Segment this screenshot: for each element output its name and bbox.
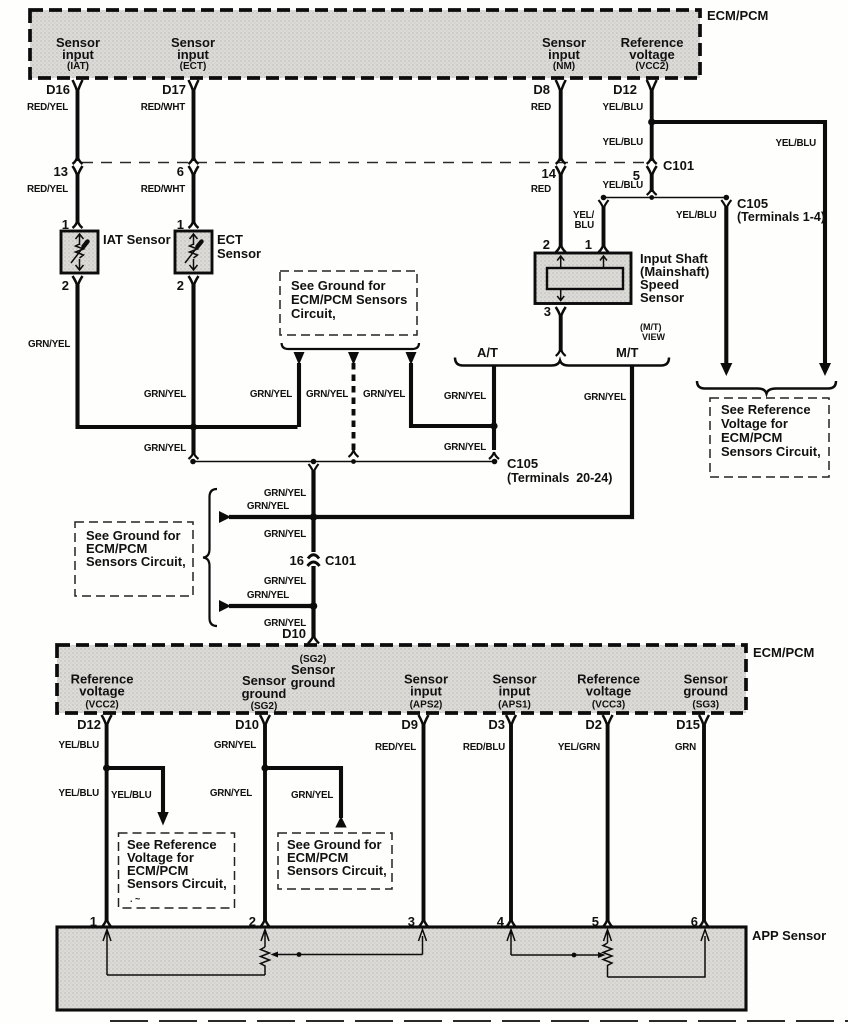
svg-text:2: 2 xyxy=(62,278,69,293)
svg-text:BLU: BLU xyxy=(574,220,594,231)
svg-text:input: input xyxy=(177,47,209,62)
svg-text:RED/WHT: RED/WHT xyxy=(141,102,186,113)
svg-text:GRN/YEL: GRN/YEL xyxy=(444,391,486,402)
svg-text:input: input xyxy=(410,684,442,699)
svg-text:(Terminals 1-4): (Terminals 1-4) xyxy=(737,210,825,224)
svg-text:RED/YEL: RED/YEL xyxy=(27,102,68,113)
svg-text:M/T: M/T xyxy=(616,345,638,360)
svg-text:YEL/BLU: YEL/BLU xyxy=(58,788,99,799)
svg-text:D8: D8 xyxy=(533,82,550,97)
svg-text:C105: C105 xyxy=(737,196,768,211)
svg-text:GRN/YEL: GRN/YEL xyxy=(247,501,289,512)
svg-text:1: 1 xyxy=(585,237,592,252)
svg-text:C105: C105 xyxy=(507,456,538,471)
svg-text:RED/WHT: RED/WHT xyxy=(141,184,186,195)
svg-text:13: 13 xyxy=(54,164,68,179)
svg-text:14: 14 xyxy=(542,166,557,181)
svg-text:ECM/PCM: ECM/PCM xyxy=(721,430,782,445)
svg-text:ECM/PCM: ECM/PCM xyxy=(707,8,768,23)
svg-text:A/T: A/T xyxy=(477,345,498,360)
svg-text:Circuit,: Circuit, xyxy=(291,306,336,321)
svg-text:GRN/YEL: GRN/YEL xyxy=(144,443,186,454)
svg-text:(M/T): (M/T) xyxy=(640,322,662,332)
svg-text:(SG2): (SG2) xyxy=(251,701,278,712)
svg-text:input: input xyxy=(499,684,531,699)
svg-text:6: 6 xyxy=(177,164,184,179)
svg-text:YEL/BLU: YEL/BLU xyxy=(602,137,643,148)
svg-text:input: input xyxy=(62,47,94,62)
svg-text:GRN/YEL: GRN/YEL xyxy=(264,529,306,540)
svg-text:D10: D10 xyxy=(235,717,259,732)
svg-text:D3: D3 xyxy=(488,717,505,732)
svg-text:D12: D12 xyxy=(613,82,637,97)
svg-text:Sensors Circuit,: Sensors Circuit, xyxy=(127,876,227,891)
svg-text:(NM): (NM) xyxy=(553,61,575,72)
svg-text:Sensors Circuit,: Sensors Circuit, xyxy=(287,863,387,878)
svg-text:GRN/YEL: GRN/YEL xyxy=(210,788,252,799)
svg-text:(APS2): (APS2) xyxy=(410,700,443,711)
svg-text:16: 16 xyxy=(290,553,304,568)
svg-text:See Reference: See Reference xyxy=(721,402,811,417)
svg-text:Sensors Circuit,: Sensors Circuit, xyxy=(721,444,821,459)
svg-text:YEL/BLU: YEL/BLU xyxy=(775,138,816,149)
svg-text:ECM/PCM Sensors: ECM/PCM Sensors xyxy=(291,292,407,307)
svg-text:VIEW: VIEW xyxy=(642,332,666,342)
svg-text:C101: C101 xyxy=(663,158,694,173)
svg-text:APP Sensor: APP Sensor xyxy=(752,928,826,943)
svg-text:(IAT): (IAT) xyxy=(67,61,89,72)
svg-text:RED: RED xyxy=(531,184,551,195)
svg-text:2: 2 xyxy=(543,237,550,252)
svg-text:C101: C101 xyxy=(325,553,356,568)
svg-text:3: 3 xyxy=(544,304,551,319)
svg-text:Voltage for: Voltage for xyxy=(721,416,788,431)
svg-text:YEL/BLU: YEL/BLU xyxy=(58,740,99,751)
svg-text:D12: D12 xyxy=(77,717,101,732)
svg-text:D16: D16 xyxy=(46,82,70,97)
svg-text:GRN/YEL: GRN/YEL xyxy=(247,590,289,601)
svg-text:D10: D10 xyxy=(282,626,306,641)
svg-text:GRN/YEL: GRN/YEL xyxy=(291,790,333,801)
svg-text:voltage: voltage xyxy=(586,684,632,699)
svg-text:GRN/YEL: GRN/YEL xyxy=(264,576,306,587)
svg-text:RED: RED xyxy=(531,102,551,113)
svg-text:Sensor: Sensor xyxy=(640,290,684,305)
svg-text:GRN/YEL: GRN/YEL xyxy=(306,389,348,400)
svg-text:ECM/PCM: ECM/PCM xyxy=(753,645,814,660)
svg-text:GRN/YEL: GRN/YEL xyxy=(250,389,292,400)
svg-text:Sensor: Sensor xyxy=(217,246,261,261)
svg-text:input: input xyxy=(548,47,580,62)
svg-text:GRN/YEL: GRN/YEL xyxy=(28,339,70,350)
svg-text:YEL/BLU: YEL/BLU xyxy=(676,210,717,221)
svg-text:YEL/BLU: YEL/BLU xyxy=(602,102,643,113)
svg-text:D2: D2 xyxy=(585,717,602,732)
svg-text:(VCC2): (VCC2) xyxy=(85,700,118,711)
svg-text:2: 2 xyxy=(177,278,184,293)
svg-text:GRN/YEL: GRN/YEL xyxy=(444,442,486,453)
svg-text:ground: ground xyxy=(683,684,728,699)
svg-text:YEL/BLU: YEL/BLU xyxy=(111,790,152,801)
svg-text:YEL/BLU: YEL/BLU xyxy=(602,180,643,191)
svg-text:voltage: voltage xyxy=(629,47,675,62)
svg-text:RED/YEL: RED/YEL xyxy=(375,742,416,753)
svg-text:RED/BLU: RED/BLU xyxy=(463,742,505,753)
svg-text:(SG3): (SG3) xyxy=(692,700,719,711)
svg-text:(Terminals 20-24): (Terminals 20-24) xyxy=(507,471,612,485)
svg-text:ECT: ECT xyxy=(217,232,243,247)
svg-text:GRN/YEL: GRN/YEL xyxy=(264,488,306,499)
svg-text:(VCC2): (VCC2) xyxy=(635,61,668,72)
svg-text:YEL/GRN: YEL/GRN xyxy=(558,742,600,753)
svg-text:(ECT): (ECT) xyxy=(180,61,207,72)
svg-text:D17: D17 xyxy=(162,82,186,97)
svg-text:GRN/YEL: GRN/YEL xyxy=(363,389,405,400)
svg-text:GRN/YEL: GRN/YEL xyxy=(214,740,256,751)
svg-text:. ~: . ~ xyxy=(130,894,140,904)
svg-text:Sensors Circuit,: Sensors Circuit, xyxy=(86,554,186,569)
svg-text:GRN: GRN xyxy=(675,742,696,753)
svg-text:ground: ground xyxy=(242,686,287,701)
svg-text:IAT Sensor: IAT Sensor xyxy=(103,232,171,247)
svg-text:GRN/YEL: GRN/YEL xyxy=(584,392,626,403)
svg-text:(APS1): (APS1) xyxy=(498,700,531,711)
svg-text:See Ground for: See Ground for xyxy=(291,278,386,293)
svg-text:RED/YEL: RED/YEL xyxy=(27,184,68,195)
svg-text:D9: D9 xyxy=(401,717,418,732)
svg-text:voltage: voltage xyxy=(79,684,125,699)
svg-text:ground: ground xyxy=(291,675,336,690)
svg-text:D15: D15 xyxy=(676,717,700,732)
svg-text:GRN/YEL: GRN/YEL xyxy=(144,389,186,400)
svg-text:(VCC3): (VCC3) xyxy=(592,700,625,711)
